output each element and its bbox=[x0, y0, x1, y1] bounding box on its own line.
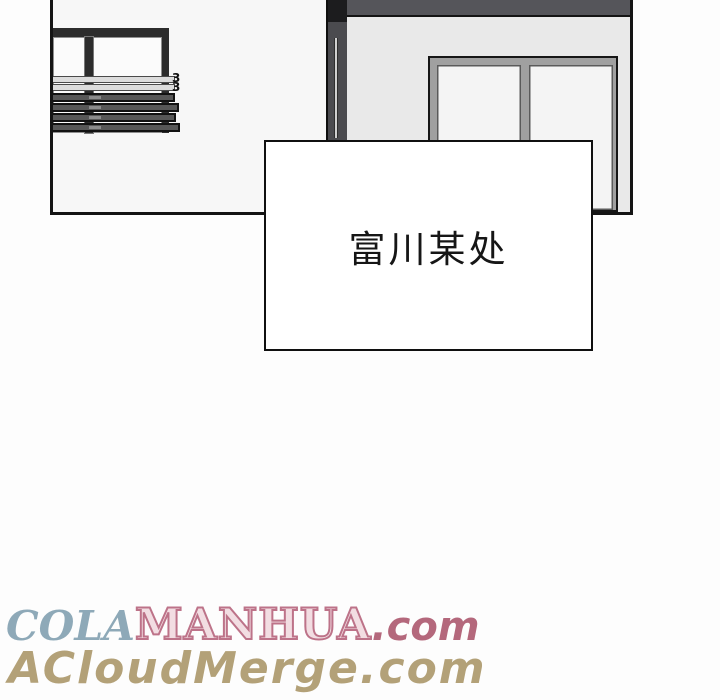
drainpipe bbox=[334, 38, 338, 138]
roof-band bbox=[326, 0, 630, 17]
watermark-cola: COLA bbox=[6, 605, 135, 648]
blind-slat bbox=[53, 123, 180, 132]
window-rail-top bbox=[53, 76, 175, 83]
blind-slat bbox=[53, 93, 175, 102]
watermark-dotcom: .com bbox=[371, 606, 479, 648]
caption-box: 富川某处 bbox=[264, 140, 593, 351]
caption-text: 富川某处 bbox=[349, 219, 509, 273]
blind-slat bbox=[53, 103, 179, 112]
blind-slat bbox=[53, 113, 176, 122]
comic-page: 3 3 富川某处 COLAMANHUA.com ACloudMerge.com bbox=[0, 0, 720, 700]
watermark-colamanhua: COLAMANHUA.com bbox=[6, 604, 480, 648]
watermark-manhua: MANHUA bbox=[135, 604, 371, 648]
spring-clip-icon: 3 bbox=[172, 82, 182, 92]
window-rail-bottom bbox=[53, 84, 175, 91]
watermark-acloudmerge: ACloudMerge.com bbox=[8, 645, 487, 693]
